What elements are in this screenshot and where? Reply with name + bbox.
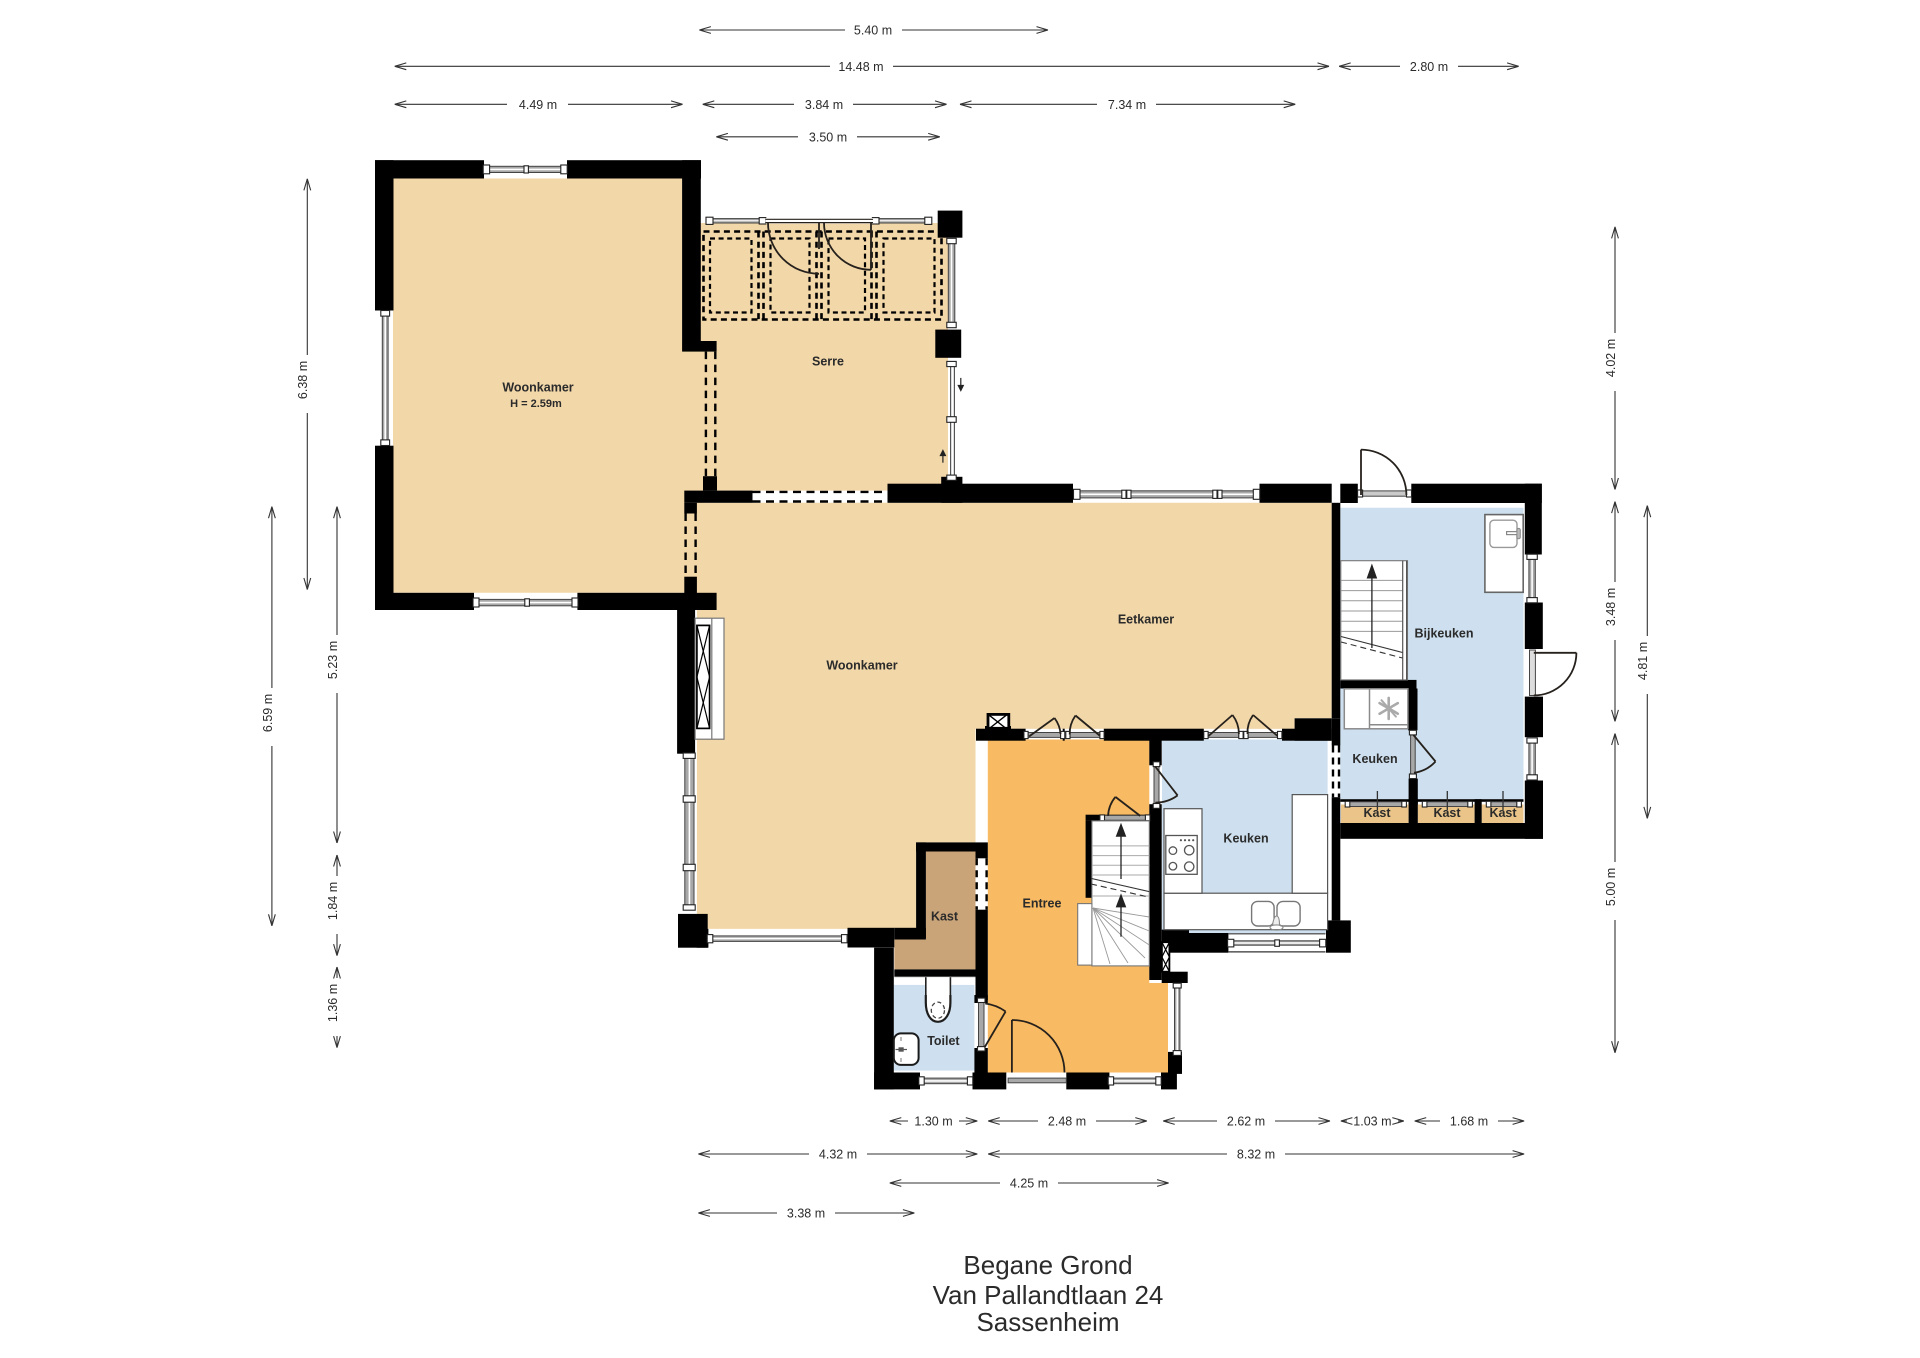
svg-text:1.36 m: 1.36 m: [326, 984, 340, 1022]
svg-text:Woonkamer: Woonkamer: [826, 659, 897, 673]
svg-text:5.40 m: 5.40 m: [854, 24, 892, 38]
svg-text:3.38 m: 3.38 m: [787, 1207, 825, 1221]
svg-text:2.80 m: 2.80 m: [1410, 60, 1448, 74]
svg-text:8.32 m: 8.32 m: [1237, 1148, 1275, 1162]
svg-text:5.23 m: 5.23 m: [326, 641, 340, 679]
svg-text:Eetkamer: Eetkamer: [1118, 613, 1174, 627]
svg-text:Bijkeuken: Bijkeuken: [1414, 627, 1473, 641]
svg-text:4.25 m: 4.25 m: [1010, 1177, 1048, 1191]
svg-text:4.32 m: 4.32 m: [819, 1148, 857, 1162]
svg-text:4.81 m: 4.81 m: [1636, 642, 1650, 680]
svg-text:Entree: Entree: [1023, 897, 1062, 911]
svg-text:14.48 m: 14.48 m: [838, 60, 883, 74]
svg-text:Kast: Kast: [1433, 806, 1461, 820]
svg-text:4.02 m: 4.02 m: [1604, 339, 1618, 377]
svg-text:7.34 m: 7.34 m: [1108, 98, 1146, 112]
svg-text:Keuken: Keuken: [1223, 832, 1268, 846]
svg-text:3.50 m: 3.50 m: [809, 130, 847, 144]
svg-text:Sassenheim: Sassenheim: [976, 1307, 1119, 1337]
svg-text:Kast: Kast: [1489, 806, 1517, 820]
svg-text:Kast: Kast: [1363, 806, 1391, 820]
svg-text:4.49 m: 4.49 m: [519, 98, 557, 112]
svg-text:Toilet: Toilet: [927, 1034, 960, 1048]
svg-text:1.68 m: 1.68 m: [1450, 1115, 1488, 1129]
svg-text:1.84 m: 1.84 m: [326, 882, 340, 920]
svg-text:3.84 m: 3.84 m: [805, 98, 843, 112]
svg-text:3.48 m: 3.48 m: [1604, 588, 1618, 626]
svg-text:Serre: Serre: [812, 355, 844, 369]
svg-text:1.03 m: 1.03 m: [1353, 1115, 1391, 1129]
svg-text:6.38 m: 6.38 m: [296, 361, 310, 399]
svg-text:H = 2.59m: H = 2.59m: [510, 398, 562, 410]
svg-text:2.48 m: 2.48 m: [1048, 1115, 1086, 1129]
svg-text:Van Pallandtlaan 24: Van Pallandtlaan 24: [933, 1280, 1164, 1310]
svg-text:Woonkamer: Woonkamer: [502, 381, 573, 395]
svg-text:2.62 m: 2.62 m: [1227, 1115, 1265, 1129]
svg-text:Begane Grond: Begane Grond: [963, 1250, 1132, 1280]
svg-text:5.00 m: 5.00 m: [1604, 868, 1618, 906]
svg-text:Kast: Kast: [931, 910, 959, 924]
svg-text:1.30 m: 1.30 m: [914, 1115, 952, 1129]
svg-text:Keuken: Keuken: [1352, 752, 1397, 766]
svg-text:6.59 m: 6.59 m: [261, 694, 275, 732]
